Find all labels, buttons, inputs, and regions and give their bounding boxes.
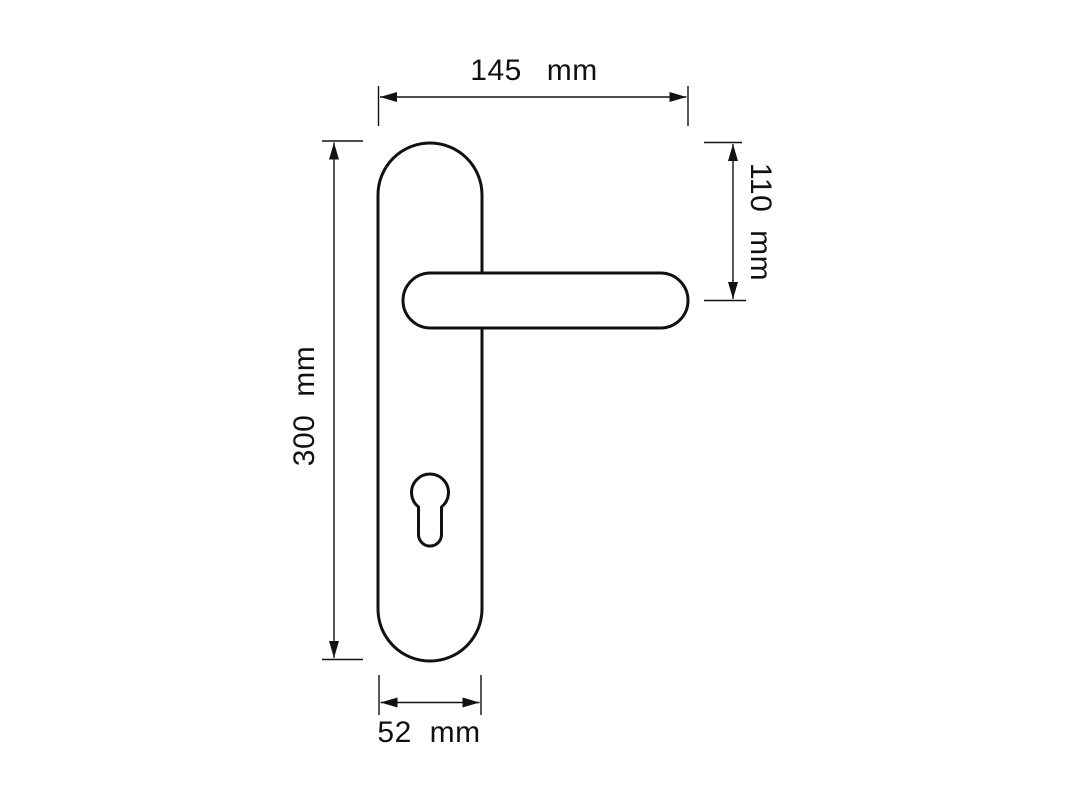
dim-value: 110 bbox=[744, 163, 777, 212]
dim-plate-width: 52 mm bbox=[377, 675, 481, 749]
dim-top-to-lever-offset: 110 mm bbox=[704, 143, 777, 301]
dim-value: 145 bbox=[470, 54, 522, 87]
dim-value: 300 bbox=[288, 415, 321, 467]
handle-drawing bbox=[378, 143, 688, 661]
technical-drawing: 145 mm 110 mm 300 mm bbox=[0, 0, 1067, 800]
keyhole-cutout bbox=[412, 474, 449, 546]
lever-handle-outline bbox=[403, 273, 688, 328]
dim-unit: mm bbox=[288, 346, 321, 397]
dim-overall-width-label: 145 mm bbox=[470, 54, 597, 87]
dim-unit: mm bbox=[430, 716, 481, 749]
dim-unit: mm bbox=[547, 54, 598, 87]
dim-top-to-lever-offset-label: 110 mm bbox=[744, 163, 777, 281]
dim-unit: mm bbox=[744, 230, 777, 281]
backplate-outline bbox=[378, 143, 482, 661]
dim-plate-width-label: 52 mm bbox=[377, 716, 480, 749]
dim-plate-height: 300 mm bbox=[288, 141, 363, 660]
dim-overall-width: 145 mm bbox=[379, 54, 689, 126]
drawing-canvas: 145 mm 110 mm 300 mm bbox=[0, 0, 1067, 800]
dim-value: 52 bbox=[377, 716, 411, 749]
dim-plate-height-label: 300 mm bbox=[288, 346, 321, 466]
